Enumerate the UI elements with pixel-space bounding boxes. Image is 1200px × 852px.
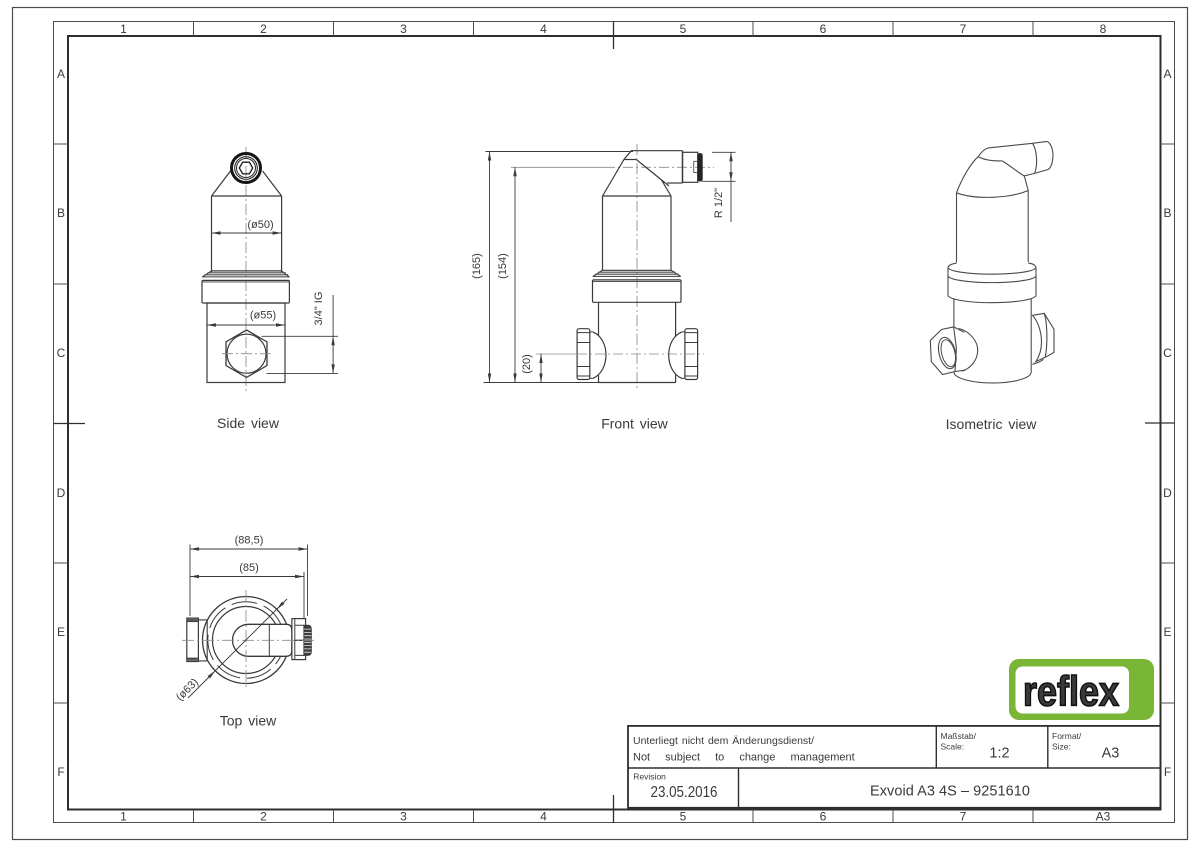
svg-text:(20): (20) [521,354,533,374]
svg-text:(85): (85) [239,562,259,574]
svg-text:1: 1 [120,22,127,36]
svg-text:6: 6 [820,22,827,36]
svg-text:5: 5 [680,22,687,36]
svg-text:1:2: 1:2 [989,746,1009,762]
svg-text:Unterliegt nicht dem Änderungs: Unterliegt nicht dem Änderungsdienst/ [633,735,814,747]
svg-text:Top view: Top view [220,713,277,729]
svg-text:2: 2 [260,22,267,36]
svg-text:A: A [1163,67,1171,81]
svg-text:Side view: Side view [217,415,280,431]
svg-text:B: B [57,206,65,220]
svg-text:Not subject to change manageme: Not subject to change management [633,752,855,764]
svg-text:D: D [1163,486,1172,500]
svg-text:Size:: Size: [1052,742,1071,752]
svg-text:Revision: Revision [633,772,666,782]
svg-text:(ø50): (ø50) [247,219,273,231]
svg-text:(154): (154) [497,253,509,279]
svg-text:6: 6 [820,810,827,824]
svg-text:D: D [57,486,66,500]
svg-text:C: C [1163,346,1172,360]
svg-text:E: E [1163,625,1171,639]
svg-text:3/4" IG: 3/4" IG [313,292,325,326]
svg-text:4: 4 [540,22,547,36]
svg-text:2: 2 [260,810,267,824]
svg-text:23.05.2016: 23.05.2016 [651,784,718,801]
svg-text:3: 3 [400,810,407,824]
svg-text:A: A [57,67,65,81]
svg-text:1: 1 [120,810,127,824]
svg-text:(165): (165) [471,253,483,279]
svg-text:8: 8 [1100,22,1107,36]
svg-text:(ø55): (ø55) [250,310,276,322]
svg-text:Front view: Front view [601,416,668,432]
svg-text:E: E [57,625,65,639]
svg-text:F: F [57,765,64,779]
svg-text:Exvoid A3 4S – 9251610: Exvoid A3 4S – 9251610 [870,784,1030,800]
svg-text:A3: A3 [1096,810,1111,824]
svg-text:4: 4 [540,810,547,824]
svg-text:Maßstab/: Maßstab/ [941,731,977,741]
svg-text:(88,5): (88,5) [235,535,264,547]
svg-text:C: C [57,346,66,360]
svg-text:Format/: Format/ [1052,731,1082,741]
svg-text:3: 3 [400,22,407,36]
svg-text:Scale:: Scale: [941,742,965,752]
svg-text:5: 5 [680,810,687,824]
svg-text:7: 7 [960,22,967,36]
svg-text:Isometric view: Isometric view [946,416,1038,432]
svg-text:B: B [1163,206,1171,220]
svg-text:A3: A3 [1102,746,1120,762]
svg-text:R 1/2": R 1/2" [713,188,725,218]
svg-text:7: 7 [960,810,967,824]
svg-text:reflex: reflex [1023,668,1120,715]
svg-text:F: F [1164,765,1171,779]
